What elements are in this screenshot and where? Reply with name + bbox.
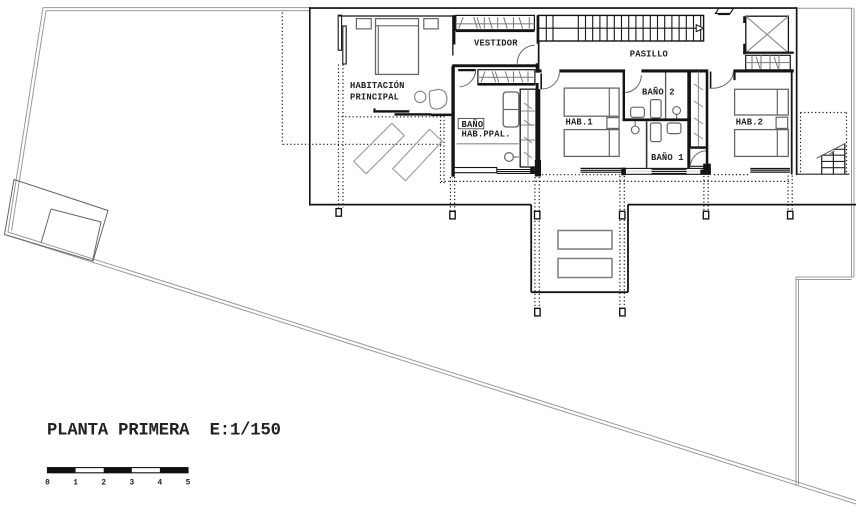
svg-text:BAÑO 1: BAÑO 1	[651, 152, 684, 163]
svg-text:2: 2	[101, 480, 106, 488]
svg-text:5: 5	[186, 480, 191, 488]
svg-text:PASILLO: PASILLO	[630, 49, 668, 59]
svg-text:1: 1	[73, 480, 78, 488]
svg-text:PLANTA PRIMERA E:1/150: PLANTA PRIMERA E:1/150	[47, 422, 281, 441]
svg-text:HAB.PPAL.: HAB.PPAL.	[462, 130, 511, 140]
svg-text:0: 0	[45, 480, 50, 488]
svg-text:BAÑO: BAÑO	[462, 119, 484, 130]
svg-text:BAÑO 2: BAÑO 2	[642, 86, 675, 97]
svg-text:HABITACIÓN: HABITACIÓN	[350, 80, 405, 91]
svg-text:VESTIDOR: VESTIDOR	[474, 38, 518, 48]
svg-text:4: 4	[158, 480, 163, 488]
svg-text:3: 3	[129, 480, 134, 488]
svg-text:HAB.1: HAB.1	[566, 118, 593, 128]
svg-text:HAB.2: HAB.2	[736, 118, 763, 128]
svg-text:PRINCIPAL: PRINCIPAL	[350, 92, 399, 102]
